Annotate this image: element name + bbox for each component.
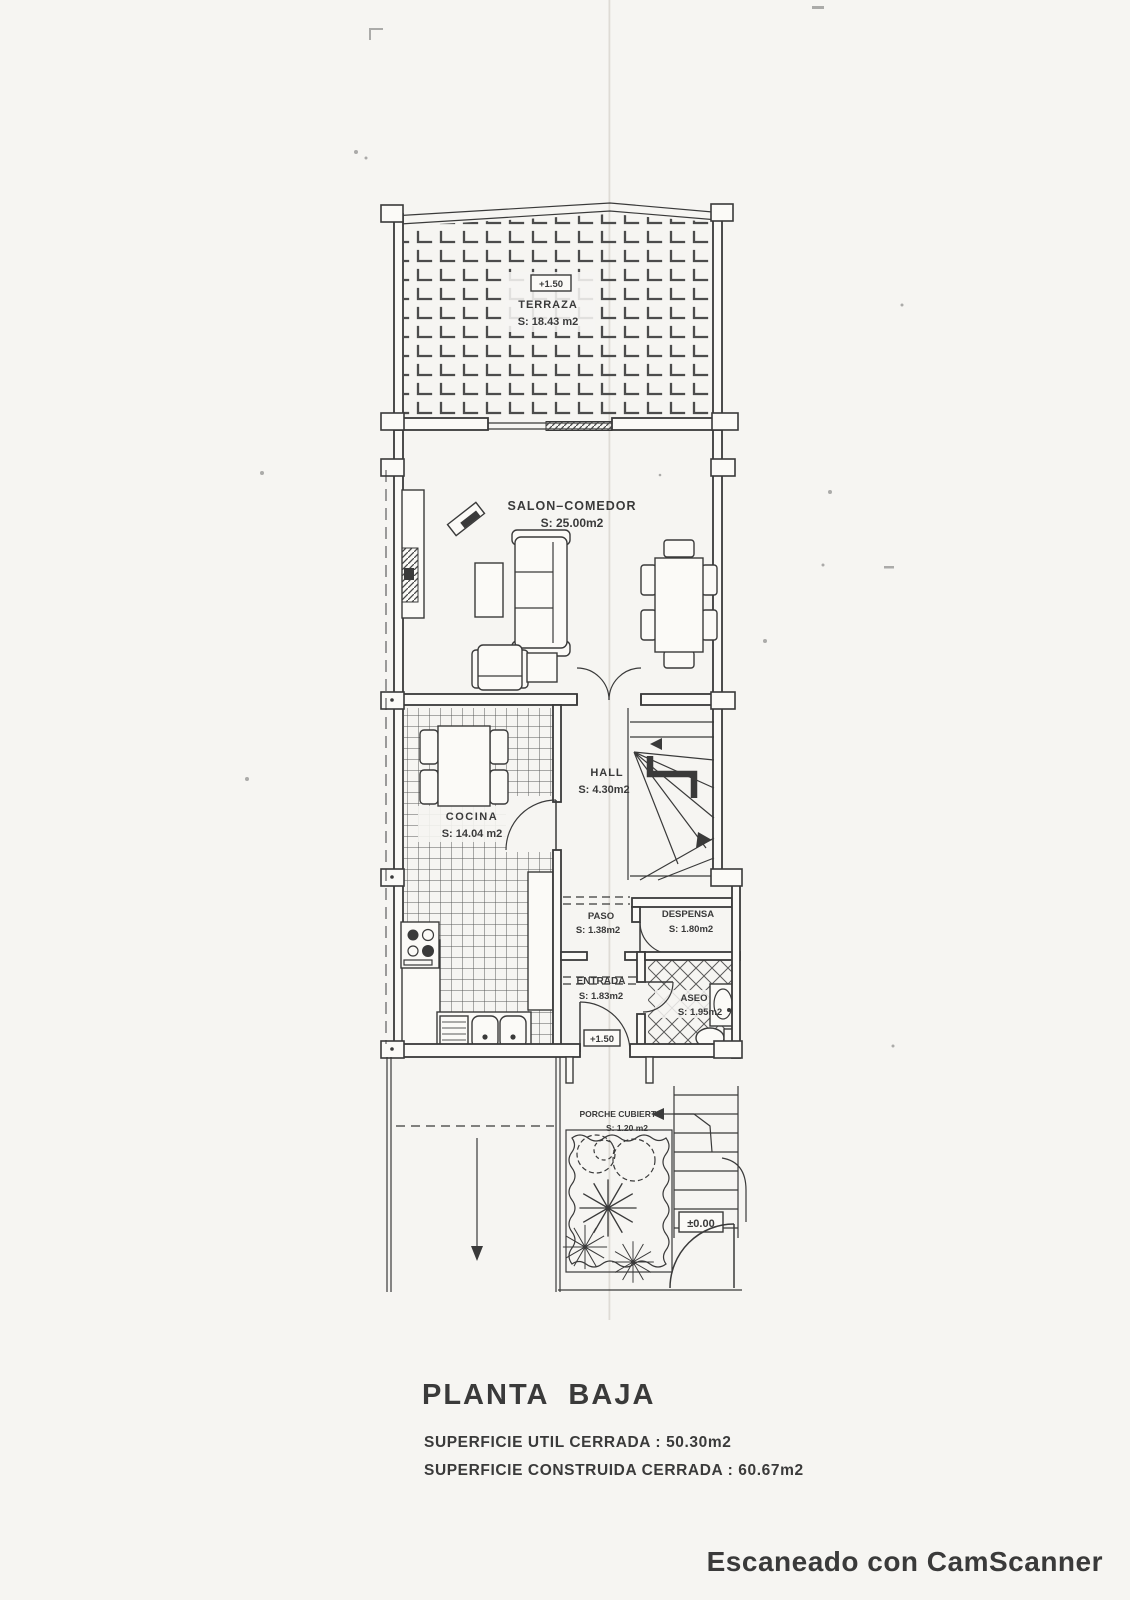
room-label-salon: SALON–COMEDOR (508, 499, 637, 513)
room-aseo: ASEO S: 1.95m2 (637, 952, 740, 1052)
plan-title: PLANTA BAJA (422, 1379, 655, 1411)
level-marker-entrada: +1.50 (590, 1034, 614, 1045)
overhead-beam-dashed (563, 897, 630, 904)
salon-wall-niche (402, 490, 484, 618)
room-area-porche: S: 1.20 m2 (606, 1123, 648, 1133)
room-label-entrada: ENTRADA (577, 976, 626, 987)
exterior-area: PORCHE CUBIERTO S: 1.20 m2 ±0.00 (387, 1057, 746, 1292)
area-summary-line2: SUPERFICIE CONSTRUIDA CERRADA : 60.67m2 (424, 1462, 804, 1479)
coffee-table (527, 653, 557, 682)
despensa-door (640, 922, 672, 954)
floor-plan-drawing: +1.50 TERRAZA S: 18.43 m2 (0, 0, 1130, 1600)
room-label-terraza: TERRAZA (518, 299, 578, 311)
room-area-terraza: S: 18.43 m2 (518, 316, 579, 328)
cooktop (401, 922, 439, 968)
area-summary-line1: SUPERFICIE UTIL CERRADA : 50.30m2 (424, 1434, 731, 1451)
room-terraza: +1.50 TERRAZA S: 18.43 m2 (392, 203, 724, 424)
level-marker-terraza: +1.50 (539, 279, 563, 290)
room-entrada: +1.50 ENTRADA S: 1.83m2 (561, 952, 645, 1052)
room-area-paso: S: 1.38m2 (576, 925, 620, 936)
room-area-cocina: S: 14.04 m2 (442, 828, 503, 840)
room-salon-comedor: SALON–COMEDOR S: 25.00m2 (394, 418, 722, 705)
room-area-hall: S: 4.30m2 (578, 784, 629, 796)
room-cocina: COCINA S: 14.04 m2 (394, 704, 561, 1052)
plant (579, 1179, 636, 1236)
room-label-hall: HALL (590, 767, 623, 779)
driveway-arrow (471, 1138, 483, 1261)
room-area-despensa: S: 1.80m2 (669, 924, 713, 935)
plant (612, 1241, 654, 1283)
dining-table-set (641, 540, 717, 668)
room-area-entrada: S: 1.83m2 (579, 991, 623, 1002)
room-paso: PASO S: 1.38m2 (563, 897, 630, 936)
side-table (475, 563, 503, 617)
camscanner-watermark: Escaneado con CamScanner (707, 1546, 1103, 1577)
room-label-cocina: COCINA (446, 811, 498, 823)
room-label-porche: PORCHE CUBIERTO (580, 1109, 663, 1119)
plant (563, 1225, 607, 1269)
bush (613, 1139, 655, 1181)
sofa (512, 530, 570, 656)
stair-direction-arrow (650, 738, 662, 750)
room-despensa: DESPENSA S: 1.80m2 (632, 898, 732, 954)
room-label-aseo: ASEO (681, 993, 708, 1004)
interior-staircase (628, 708, 714, 880)
room-area-salon: S: 25.00m2 (541, 516, 604, 530)
room-label-paso: PASO (588, 911, 614, 922)
scan-fold-line (609, 0, 611, 1320)
plan-footer: PLANTA BAJA SUPERFICIE UTIL CERRADA : 50… (422, 1379, 804, 1479)
kitchen-counter-right (528, 872, 553, 1010)
terrace-window (546, 422, 612, 431)
armchair (472, 645, 528, 690)
garden-bed (563, 1130, 672, 1283)
room-hall: HALL S: 4.30m2 (578, 704, 722, 885)
room-label-despensa: DESPENSA (662, 909, 714, 920)
room-area-aseo: S: 1.95m2 (678, 1007, 722, 1018)
